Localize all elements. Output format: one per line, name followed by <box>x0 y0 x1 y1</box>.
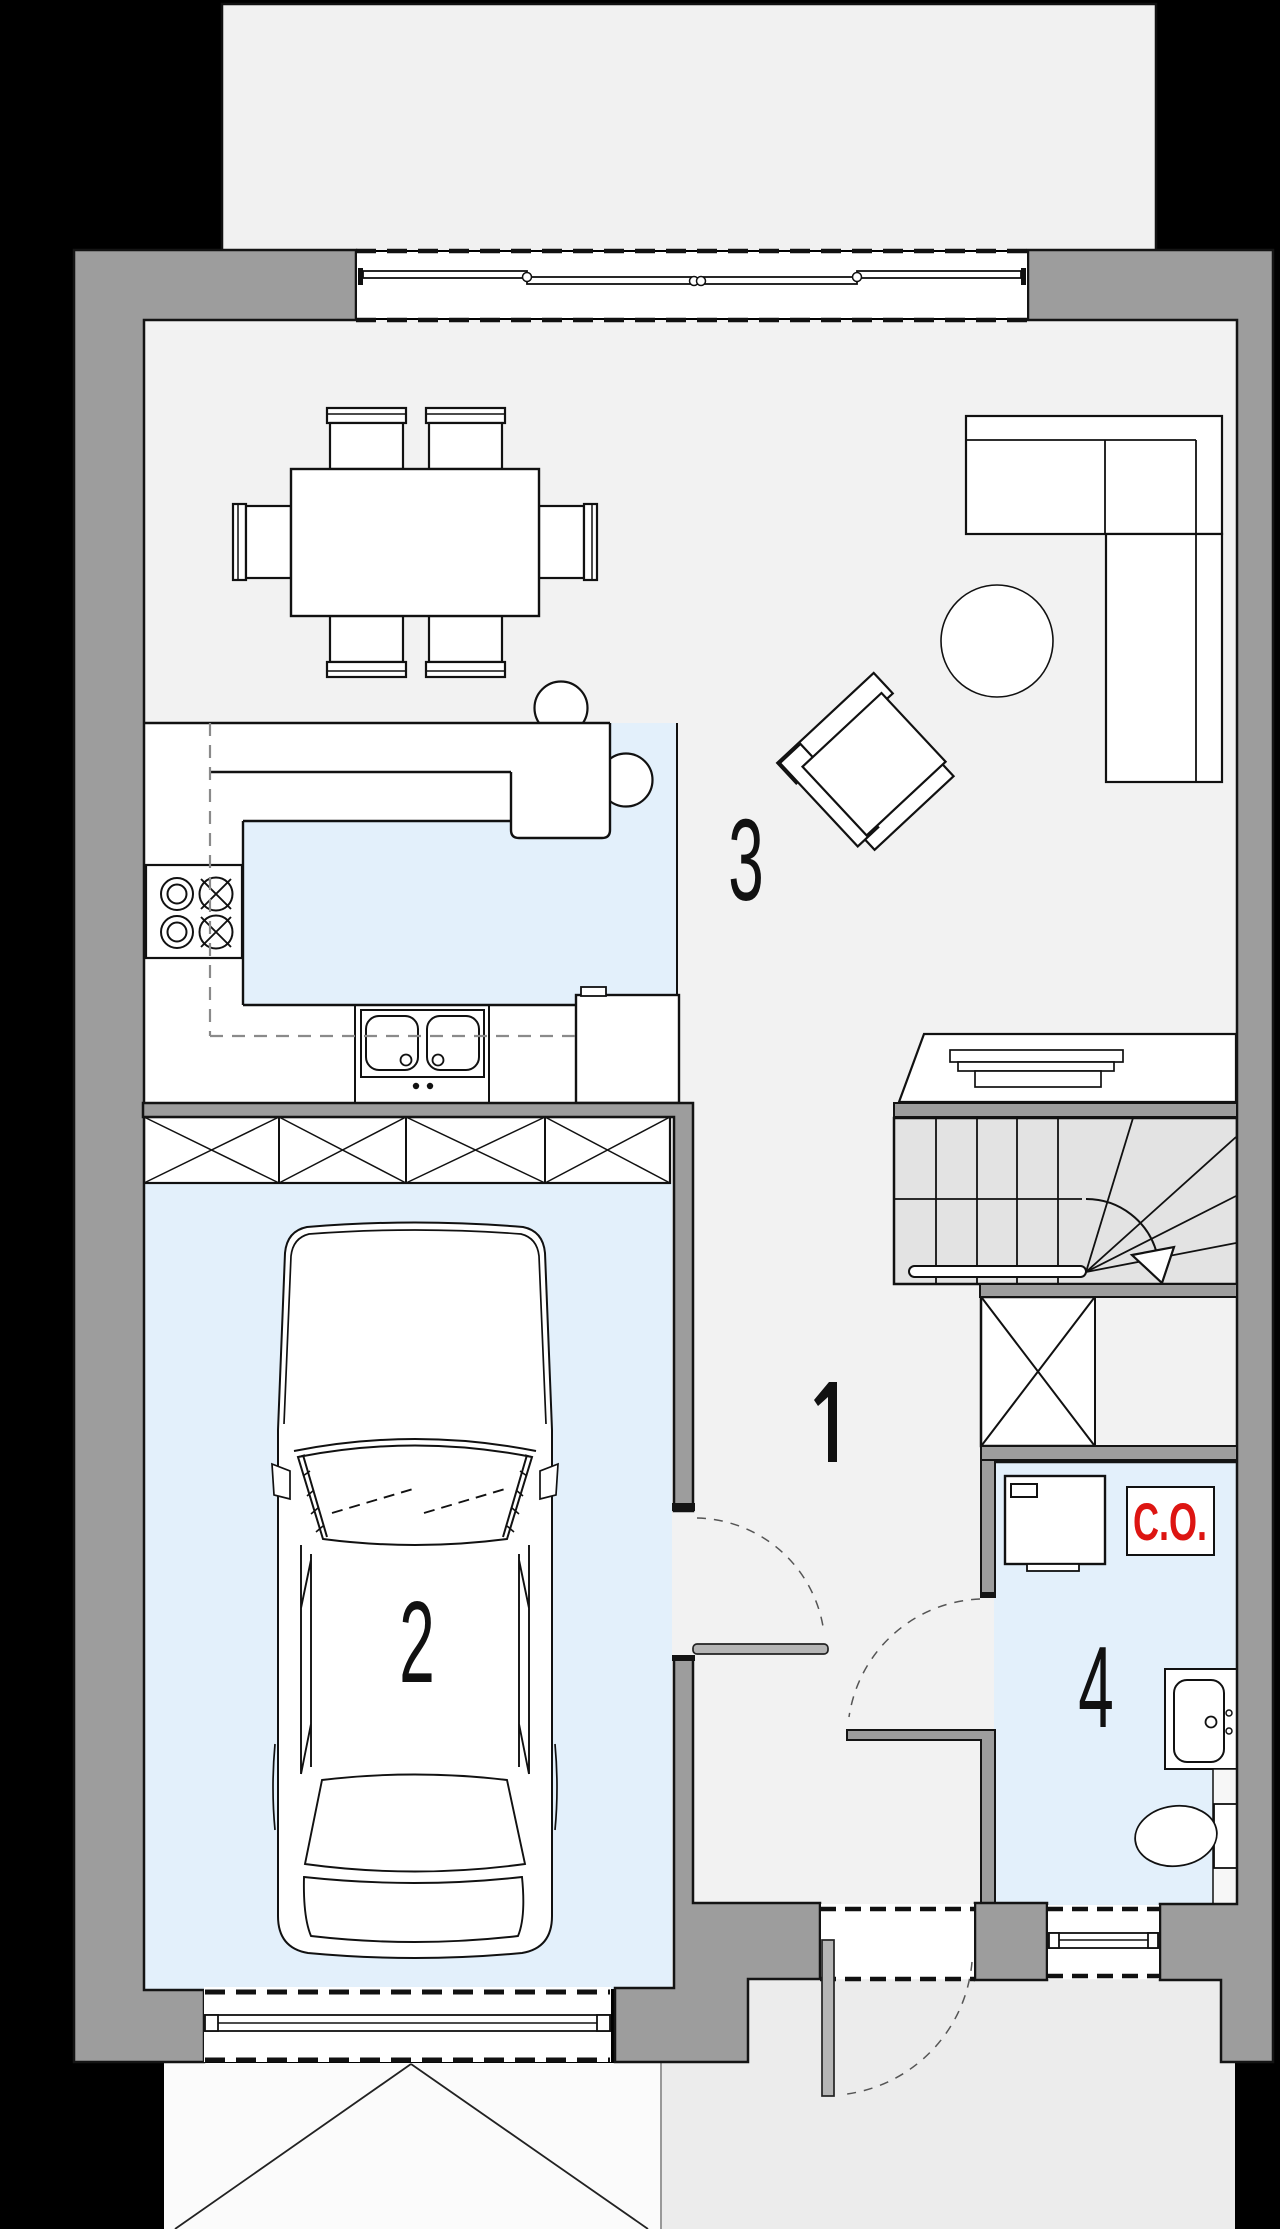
svg-text:C.O.: C.O. <box>1133 1492 1207 1552</box>
svg-text:3: 3 <box>728 795 763 925</box>
svg-text:4: 4 <box>1078 1622 1113 1752</box>
svg-text:2: 2 <box>399 1577 434 1707</box>
